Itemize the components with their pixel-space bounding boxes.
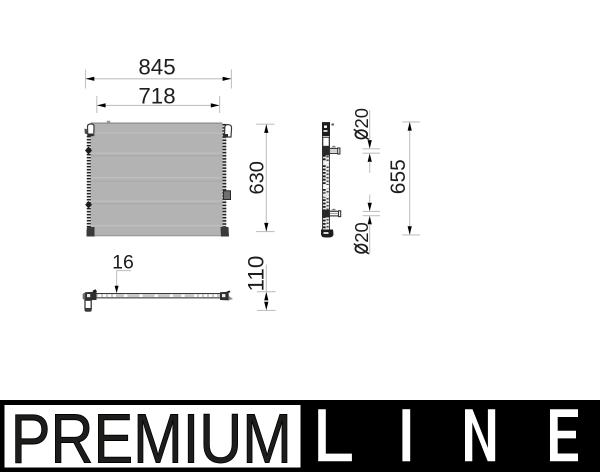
svg-text:718: 718 [138, 84, 175, 109]
svg-text:630: 630 [247, 161, 269, 194]
svg-text:110: 110 [244, 256, 269, 292]
svg-text:655: 655 [387, 159, 410, 194]
svg-text:20: 20 [351, 222, 372, 243]
svg-text:PREMIUM: PREMIUM [11, 400, 292, 472]
svg-text:20: 20 [351, 108, 372, 129]
svg-text:845: 845 [138, 54, 175, 79]
